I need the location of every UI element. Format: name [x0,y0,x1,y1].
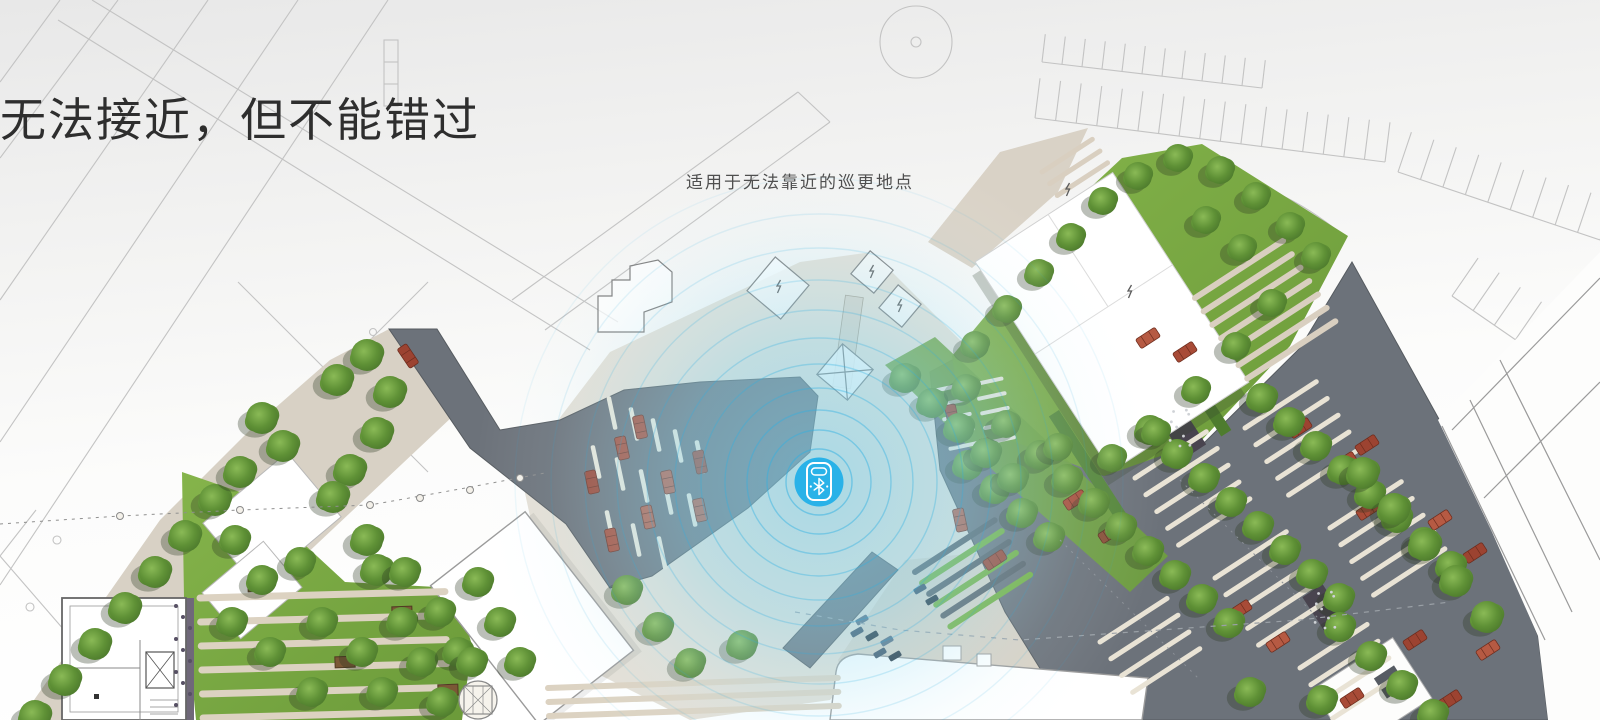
hero-section: 无法接近，但不能错过 适用于无法靠近的巡更地点 [0,0,1600,720]
page-title: 无法接近，但不能错过 [0,84,1600,150]
fountain-detail [459,681,497,719]
beacon-icon [795,458,844,507]
page-subtitle: 适用于无法靠近的巡更地点 [0,168,1600,193]
